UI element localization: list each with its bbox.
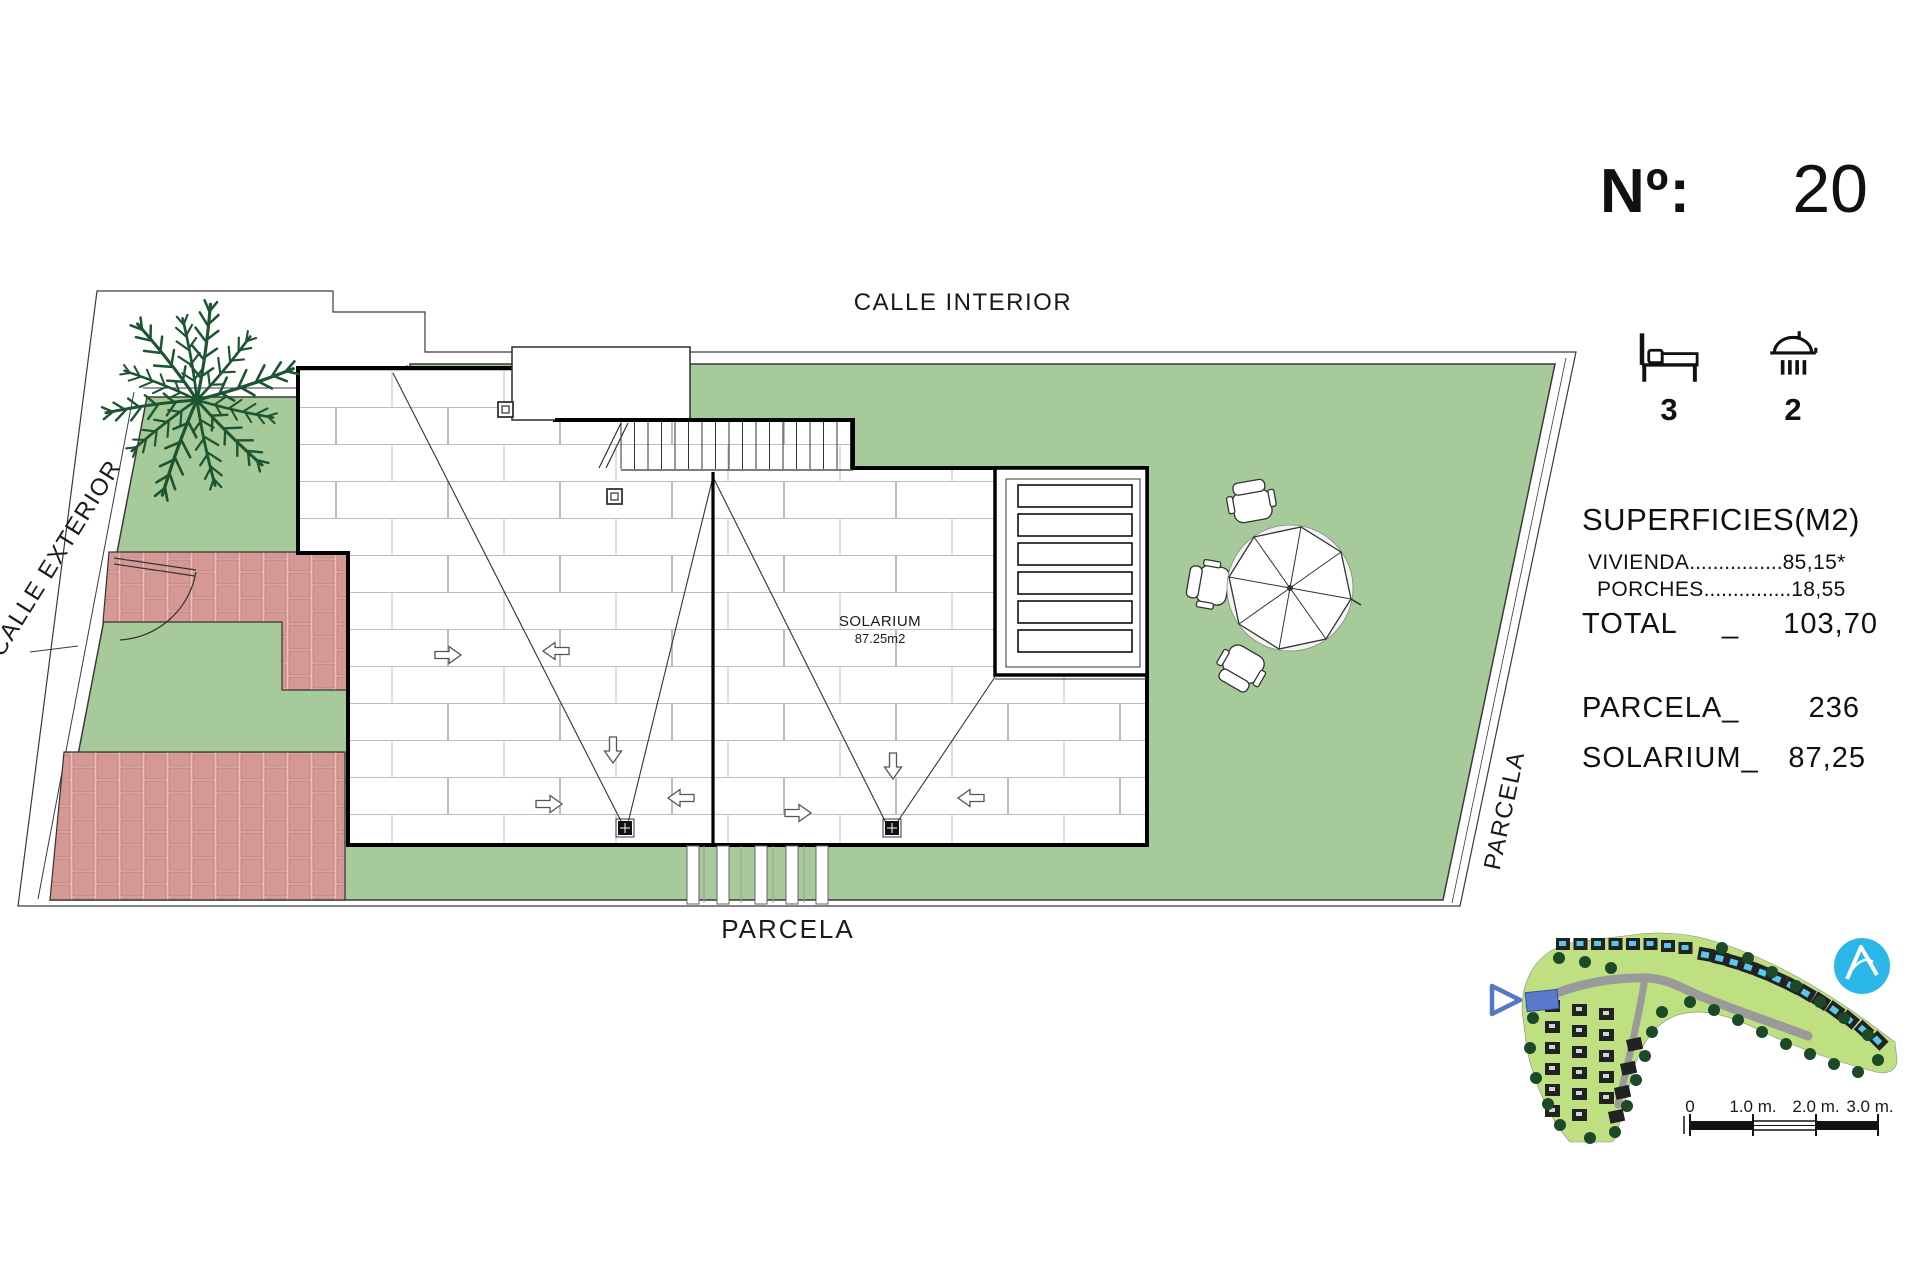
solarium-row: SOLARIUM_ 87,25 (1582, 742, 1866, 775)
leader-dots: ................ (1689, 551, 1782, 574)
bed-icon (1636, 330, 1702, 384)
roof-vent-icon (498, 402, 513, 417)
plot-number-label: Nº: (1600, 156, 1691, 227)
pergola-slats (995, 468, 1147, 679)
surfaces-title: SUPERFICIES(M2) (1582, 502, 1860, 538)
location-arrow-icon (1492, 986, 1520, 1014)
north-logo-icon (1834, 938, 1890, 994)
shower-icon (1764, 326, 1822, 384)
svg-text:0: 0 (1685, 1097, 1694, 1116)
solarium-label: SOLARIUM_ (1582, 742, 1759, 775)
roof-vent-icon (607, 489, 622, 504)
parcel-right-label: PARCELA (1479, 749, 1531, 873)
parcela-label: PARCELA_ (1582, 692, 1739, 725)
svg-text:1.0 m.: 1.0 m. (1729, 1097, 1776, 1116)
parcel-bottom-label: PARCELA (721, 914, 854, 944)
parcela-value: 236 (1809, 692, 1860, 725)
total-separator: _ (1722, 608, 1739, 641)
total-label: TOTAL (1582, 608, 1678, 641)
porches-value: 18,55 (1791, 578, 1846, 601)
bathrooms-count: 2 (1764, 392, 1822, 428)
solarium-value: 87,25 (1788, 742, 1866, 775)
roof-drain-icon (616, 819, 634, 837)
scale-bar: 0 1.0 m. 2.0 m. 3.0 m. (1684, 1097, 1894, 1136)
plot-number: Nº: 20 (1600, 150, 1868, 228)
total-row: TOTAL _ 103,70 (1582, 608, 1878, 641)
roof-drain-icon (883, 819, 901, 837)
solarium-area-label: 87.25m2 (855, 631, 906, 646)
highlighted-plot (1525, 989, 1559, 1011)
vivienda-label: VIVIENDA (1588, 551, 1689, 574)
porches-label: PORCHES (1597, 578, 1704, 601)
solarium-label: SOLARIUM (839, 613, 921, 630)
surface-row-vivienda: VIVIENDA................85,15* (1588, 551, 1846, 575)
site-plan-sheet: CALLE INTERIOR CALLE EXTERIOR PARCELA PA… (0, 0, 1920, 1280)
plot-number-value: 20 (1792, 150, 1868, 228)
total-value: 103,70 (1783, 608, 1878, 641)
bedrooms-count: 3 (1636, 392, 1702, 428)
vivienda-value: 85,15* (1783, 551, 1846, 574)
svg-text:2.0 m.: 2.0 m. (1792, 1097, 1839, 1116)
street-top-label: CALLE INTERIOR (854, 289, 1072, 316)
surface-row-porches: PORCHES...............18,55 (1597, 578, 1846, 602)
parcela-row: PARCELA_ 236 (1582, 692, 1860, 725)
leader-dots: ............... (1704, 578, 1792, 601)
svg-text:3.0 m.: 3.0 m. (1846, 1097, 1893, 1116)
